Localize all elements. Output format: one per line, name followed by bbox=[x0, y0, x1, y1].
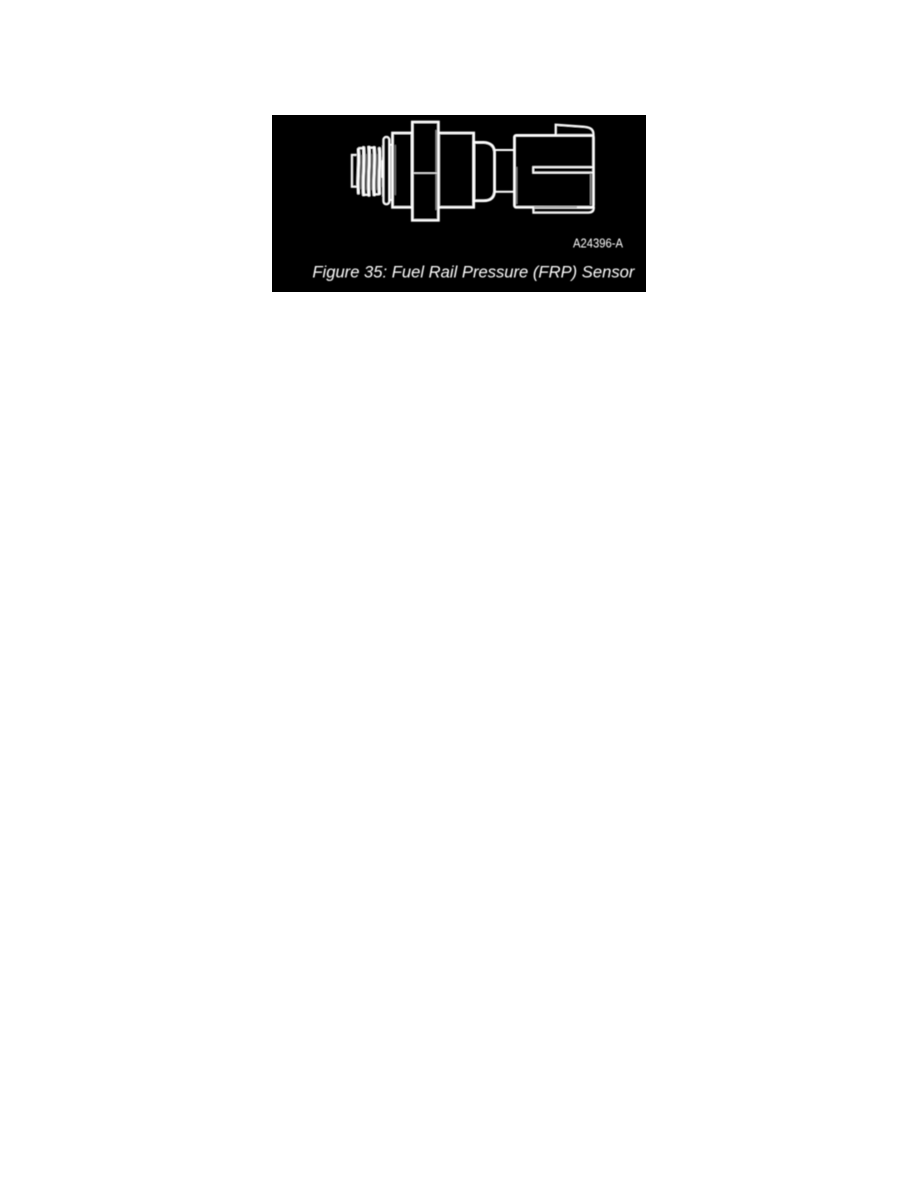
svg-text:Figure 35: Fuel Rail Pressure: Figure 35: Fuel Rail Pressure (FRP) Sens… bbox=[312, 264, 635, 282]
svg-text:A24396-A: A24396-A bbox=[573, 237, 624, 251]
